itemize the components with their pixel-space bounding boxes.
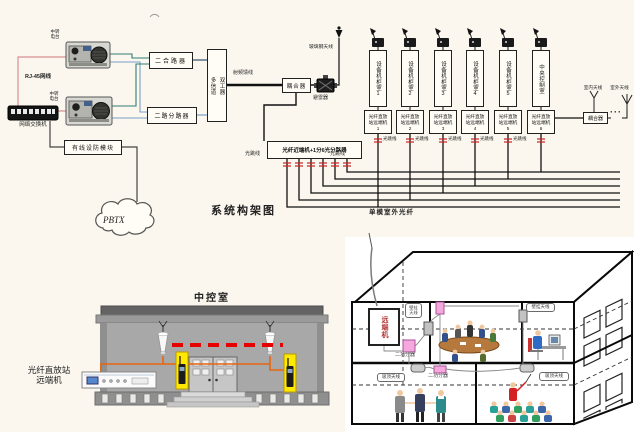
ellipsis-dots: ··· bbox=[610, 107, 622, 117]
mast-antenna-tip bbox=[337, 26, 340, 29]
indoor-antenna-icon bbox=[590, 91, 598, 112]
duplexer-text-2: 双工器 bbox=[218, 77, 226, 95]
outdoor-fiber-label: 单模室外光纤 bbox=[369, 209, 414, 216]
rack-device-label: 光纤直放站远端机 bbox=[16, 366, 82, 386]
radio-device-2 bbox=[66, 97, 112, 125]
cabinet-box-2: 设备机柜室2 bbox=[401, 50, 419, 107]
jumper-label-c5: 光跳线 bbox=[513, 136, 527, 141]
jumper-label-c4: 光跳线 bbox=[480, 136, 494, 141]
splitter-a-label: 二功分器 bbox=[395, 353, 415, 359]
coupler-box: 耦合器 bbox=[282, 78, 311, 93]
mast-antenna-icon bbox=[336, 30, 343, 38]
splitter-box: 二路分路器 bbox=[147, 107, 197, 124]
callout-wall-antenna-top: 壁挂天线 bbox=[405, 303, 422, 318]
network-switch-device bbox=[8, 106, 58, 120]
radio-device-1 bbox=[66, 42, 110, 68]
cabinet-box-1: 设备机柜室1 bbox=[369, 50, 387, 107]
cabinet-box-4: 设备机柜室4 bbox=[466, 50, 484, 107]
callout-wall-antenna-right: 壁挂天线 bbox=[526, 303, 555, 312]
power-splitter-box-2 bbox=[436, 302, 444, 314]
control-room-title: 中控室 bbox=[194, 293, 230, 305]
lightning-arrester-icon bbox=[314, 75, 337, 92]
jumper-label-left: 光跳线 bbox=[245, 152, 260, 158]
control-room-building bbox=[82, 306, 329, 407]
repeater-rack-device bbox=[82, 372, 156, 388]
callout-ceiling-antenna-right: 吸顶天线 bbox=[539, 372, 569, 381]
duplexer-box: 多信道 双工器 bbox=[207, 49, 227, 122]
jumper-label-right: 光跳线 bbox=[330, 152, 345, 158]
outdoor-antenna-icon bbox=[622, 94, 632, 110]
cabinet-box-3: 设备机柜室3 bbox=[434, 50, 452, 107]
optical-unit-box: 光纤近端机+1分6光分路器 bbox=[267, 141, 362, 159]
fiber-connectors-left bbox=[283, 163, 351, 166]
remote-unit-box-1: 光纤直放站远端机1 bbox=[364, 110, 392, 134]
radio-1-tag: 中转电台 bbox=[44, 29, 66, 39]
pbx-label: PBTX bbox=[103, 215, 125, 225]
rf-feeder-label: 射频馈线 bbox=[233, 71, 253, 77]
wall-antenna-box-1 bbox=[424, 322, 433, 335]
outdoor-antenna-label: 室外天线 bbox=[605, 85, 634, 90]
splitter-b-label: 二功分器 bbox=[428, 374, 448, 380]
diagram-page: { "colors": { "page_bg": "#fbf7ee", "red… bbox=[0, 0, 634, 432]
mast-antenna-label: 玻璃钢天线 bbox=[309, 45, 333, 51]
remote-unit-box-2: 光纤直放站远端机2 bbox=[396, 110, 424, 134]
radio-holder-left bbox=[176, 352, 188, 389]
combiner-box: 二合路器 bbox=[149, 52, 193, 69]
rj45-cable-label: RJ-45网线 bbox=[25, 74, 51, 80]
power-splitter-box-1 bbox=[403, 340, 415, 352]
cabinet-box-5: 设备机柜室5 bbox=[499, 50, 517, 107]
coupler2-box: 耦合器 bbox=[583, 112, 608, 124]
radio-2-tag: 中转电台 bbox=[43, 91, 65, 101]
remote-unit-box-3: 光纤直放站远端机3 bbox=[429, 110, 457, 134]
callout-ceiling-antenna-left: 吸顶天线 bbox=[377, 373, 405, 382]
power-splitter-box-3 bbox=[434, 366, 446, 373]
jumper-label-c3: 光跳线 bbox=[448, 136, 462, 141]
cabinet-box-6: 中央控制室 bbox=[532, 50, 550, 107]
diagram-title: 系统构架图 bbox=[211, 205, 276, 218]
duplexer-text-1: 多信道 bbox=[209, 77, 217, 95]
jumper-label-c1: 光跳线 bbox=[383, 136, 397, 141]
ceiling-antenna-1 bbox=[411, 364, 425, 372]
remote-unit-box-4: 光纤直放站远端机4 bbox=[461, 110, 489, 134]
remote-unit-box-5: 光纤直放站远端机5 bbox=[494, 110, 522, 134]
radio-holder-right bbox=[284, 354, 296, 392]
wired-adapter-box: 有线设防模块 bbox=[64, 140, 122, 155]
wall-antenna-box-2 bbox=[519, 310, 527, 322]
pen-mark bbox=[150, 14, 159, 17]
jumper-label-c2: 光跳线 bbox=[415, 136, 429, 141]
remote-unit-room-box: 远端机 bbox=[368, 308, 400, 346]
remote-unit-box-6: 光纤直放站远端机6 bbox=[527, 110, 555, 134]
remote-unit-room-text: 远端机 bbox=[379, 316, 389, 339]
arrester-label: 避雷器 bbox=[313, 96, 328, 102]
ceiling-antenna-2 bbox=[520, 364, 534, 372]
network-switch-label: 网络交换机 bbox=[5, 122, 61, 128]
